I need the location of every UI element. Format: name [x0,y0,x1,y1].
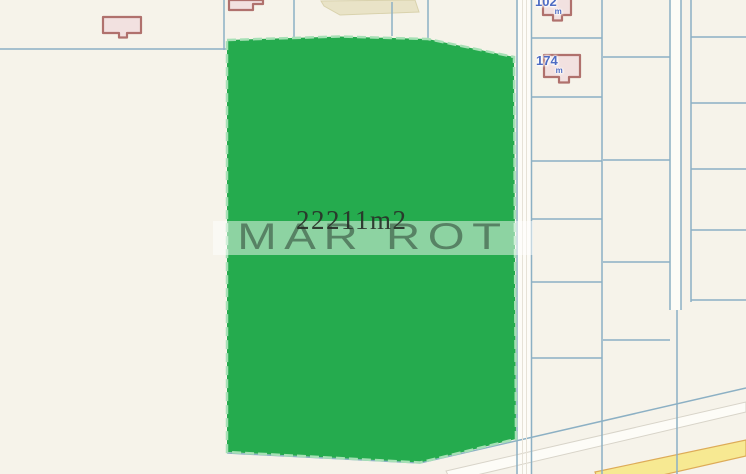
map-canvas[interactable]: MAR ROT 22211m2 102 m 174 m [0,0,746,474]
building-footprint [229,0,263,10]
building-label: 102 m [535,0,557,18]
building-label: 174 m [536,55,558,77]
road-diagonal-yellow [595,440,746,474]
field-patch-tan [321,0,419,15]
road-vertical-right [671,0,681,310]
building-label-value: 102 [535,0,557,9]
building-label-value: 174 [536,53,558,68]
parcel-area-label: 22211m2 [296,205,408,236]
building-footprint [103,17,141,38]
